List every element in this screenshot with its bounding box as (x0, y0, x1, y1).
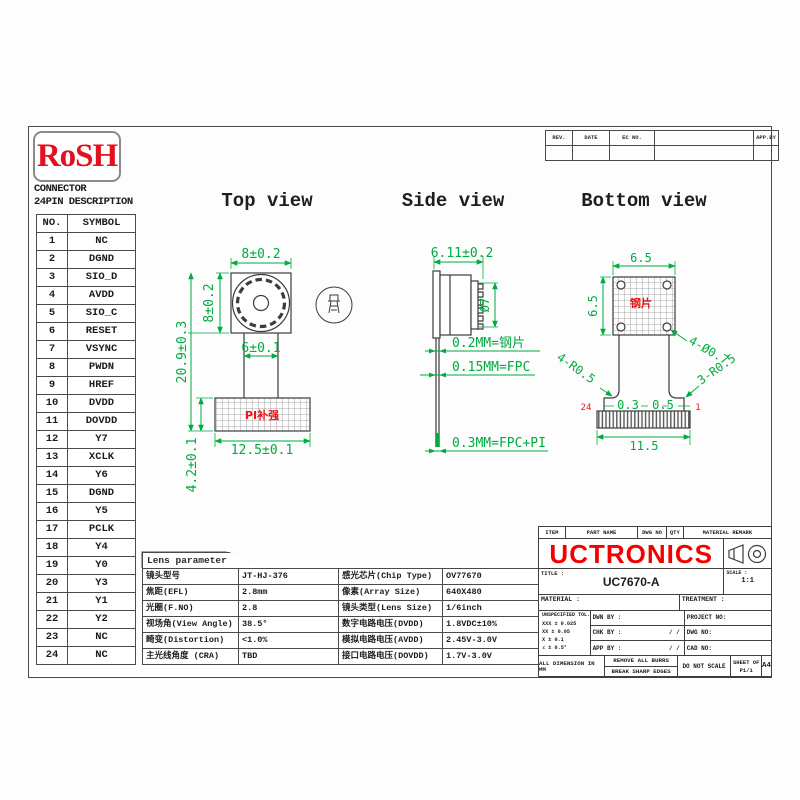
title-cell: TITLE : UC7670-A (539, 569, 724, 595)
table-row: 19Y0 (37, 557, 136, 575)
dim-top-width: 8±0.2 (241, 247, 280, 262)
table-row: 15DGND (37, 485, 136, 503)
table-row: 4AVDD (37, 287, 136, 305)
chk-by-label: CHK BY : (593, 630, 622, 636)
table-row: 镜头型号JT-HJ-376 感光芯片(Chip Type)OV77670 (143, 569, 547, 585)
top-view-title: Top view (221, 190, 313, 212)
dim-pitch-b: 0.5 (652, 398, 674, 412)
table-row: 焦距(EFL)2.8mm像素(Array Size)640X480 (143, 585, 547, 601)
rosh-badge: RoSH (33, 131, 121, 182)
table-row: 24NC (37, 647, 136, 665)
rosh-label: RoSH (37, 140, 117, 173)
connector-heading-line1: CONNECTOR (34, 183, 133, 196)
scale-label: SCALE : (726, 571, 747, 576)
tolerance-header: UNSPECIFIED TOL. (539, 611, 590, 620)
table-row: 12Y7 (37, 431, 136, 449)
title-block: ITEM PART NAME DWG NO QTY MATERIAL REMAR… (538, 526, 772, 677)
project-no-label: PROJECT NO: (685, 611, 771, 626)
rev-col: REV. (546, 131, 573, 146)
fpc-tail (436, 338, 439, 447)
sheet-number: P1/1 (740, 667, 753, 675)
top-view-drawing (215, 273, 352, 431)
revision-table: REV. DATE EC NO. APP.BY (545, 130, 779, 161)
date-col: DATE (573, 131, 610, 146)
cad-no-label: CAD NO: (685, 641, 771, 656)
treatment-label: TREATMENT : (680, 595, 771, 611)
table-row: 8PWDN (37, 359, 136, 377)
chk-date: / / (669, 630, 680, 636)
tb-item-label: ITEM (539, 527, 566, 539)
pi-stiffener-label: PI补强 (245, 408, 279, 422)
note-fpc-thickness: 0.15MM=FPC (452, 360, 530, 375)
dim-top-height: 8±0.2 (202, 283, 217, 322)
lens-barrel (471, 281, 478, 329)
company-logo: UCTRONICS (539, 539, 724, 569)
ecno-col: EC NO. (610, 131, 655, 146)
lens-parameter-table: 镜头型号JT-HJ-376 感光芯片(Chip Type)OV77670 焦距(… (142, 568, 547, 665)
break-edges-note: BREAK SHARP EDGES (605, 667, 676, 677)
table-row: 10DVDD (37, 395, 136, 413)
dim-stiffener-height: 4.2±0.1 (185, 438, 200, 493)
paper-size: A4 (762, 656, 771, 678)
table-row: 主光线角度 (CRA)TBD接口电路电压(DOVDD)1.7V-3.0V (143, 649, 547, 665)
app-date: / / (669, 646, 680, 652)
app-by-label: APP BY : (593, 646, 622, 652)
pin-connector (597, 411, 690, 428)
lens-parameter-tab-label: Lens parameter (147, 555, 227, 566)
module-backplate (433, 271, 440, 338)
table-row: 6RESET (37, 323, 136, 341)
material-label: MATERIAL : (539, 595, 680, 611)
table-row: 1NC (37, 233, 136, 251)
bottom-view-title: Bottom view (581, 190, 707, 212)
pin-1-label: 1 (695, 403, 700, 413)
table-row: 视场角(View Angle)38.5°数字电路电压(DVDD)1.8VDC±1… (143, 617, 547, 633)
pin-24-label: 24 (581, 403, 592, 413)
remove-burrs-note: REMOVE ALL BURRS (605, 656, 676, 667)
tb-partname-label: PART NAME (566, 527, 638, 539)
note-fpc-pi-thickness: 0.3MM=FPC+PI (452, 436, 546, 451)
all-dimension-note: ALL DIMENSION IN MM (539, 656, 605, 678)
table-row: 14Y6 (37, 467, 136, 485)
table-row: 17PCLK (37, 521, 136, 539)
side-view-title: Side view (402, 190, 505, 212)
table-row: 7VSYNC (37, 341, 136, 359)
dim-plate-height: 6.5 (586, 295, 600, 317)
numbers-block: PROJECT NO: DWG NO: CAD NO: (685, 611, 771, 656)
table-row: 18Y4 (37, 539, 136, 557)
sheet-cell: SHEET OF P1/1 (731, 656, 762, 678)
table-row: 5SIO_C (37, 305, 136, 323)
dim-pitch-a: 0.3 (617, 398, 639, 412)
dim-total-height: 20.9±0.3 (175, 321, 190, 384)
drawing-page: Top view Side view Bottom view PI补强 (0, 0, 800, 800)
connector-heading: CONNECTOR 24PIN DESCRIPTION (34, 183, 133, 208)
table-row: 20Y3 (37, 575, 136, 593)
scale-cell: SCALE : 1:1 (724, 569, 771, 595)
dwg-no-label: DWG NO: (685, 626, 771, 641)
table-row: 23NC (37, 629, 136, 647)
appby-col: APP.BY (754, 131, 779, 146)
dim-connector-width: 11.5 (630, 439, 659, 453)
signature-block: DWN BY : CHK BY :/ / APP BY :/ / (591, 611, 685, 656)
tb-material-remark-label: MATERIAL REMARK (684, 527, 771, 539)
steel-plate-label: 钢片 (630, 296, 652, 310)
dim-corner-left: 4-R0.5 (554, 350, 598, 386)
connector-heading-line2: 24PIN DESCRIPTION (34, 196, 133, 209)
dim-fpc-width: 6±0.1 (241, 341, 280, 356)
header-symbol: SYMBOL (68, 215, 136, 233)
table-header-row: NO. SYMBOL (37, 215, 136, 233)
side-view-drawing (433, 271, 483, 447)
header-no: NO. (37, 215, 68, 233)
table-row: 16Y5 (37, 503, 136, 521)
dim-stiffener-width: 12.5±0.1 (231, 443, 294, 458)
table-row: 11DOVDD (37, 413, 136, 431)
table-row: 22Y2 (37, 611, 136, 629)
dim-side-length: 6.11±0.2 (431, 246, 494, 261)
connector-pin-table: NO. SYMBOL 1NC 2DGND 3SIO_D 4AVDD 5SIO_C… (36, 214, 136, 665)
title-label: TITLE : (541, 571, 564, 577)
table-row: 2DGND (37, 251, 136, 269)
module-body (231, 273, 291, 333)
dwn-by-label: DWN BY : (593, 615, 622, 621)
note-steel-thickness: 0.2MM=钢片 (452, 336, 525, 351)
table-row: 光圈(F.NO)2.8镜头类型(Lens Size)1/6inch (143, 601, 547, 617)
sheet-of-label: SHEET OF (733, 659, 759, 667)
dim-plate-width: 6.5 (630, 251, 652, 265)
table-row: 9HREF (37, 377, 136, 395)
tb-dwgno-label: DWG NO (638, 527, 667, 539)
table-row: 13XCLK (37, 449, 136, 467)
table-row: 3SIO_D (37, 269, 136, 287)
part-number: UC7670-A (539, 569, 723, 594)
do-not-scale-note: DO NOT SCALE (678, 656, 732, 678)
tolerance-block: UNSPECIFIED TOL. XXX ± 0.025 XX ± 0.05 X… (539, 611, 591, 656)
table-row: 畸变(Distortion)<1.0%模拟电路电压(AVDD)2.45V-3.0… (143, 633, 547, 649)
third-angle-projection-icon (726, 541, 770, 567)
module-side-body (440, 275, 471, 335)
tb-qty-label: QTY (667, 527, 684, 539)
burrs-note: REMOVE ALL BURRS BREAK SHARP EDGES (605, 656, 677, 678)
screw-mark-icon (316, 287, 352, 323)
table-row: 21Y1 (37, 593, 136, 611)
projection-symbol-cell (724, 539, 771, 569)
dim-side-diameter: Ø7 (478, 298, 492, 312)
desc-col (655, 131, 754, 146)
